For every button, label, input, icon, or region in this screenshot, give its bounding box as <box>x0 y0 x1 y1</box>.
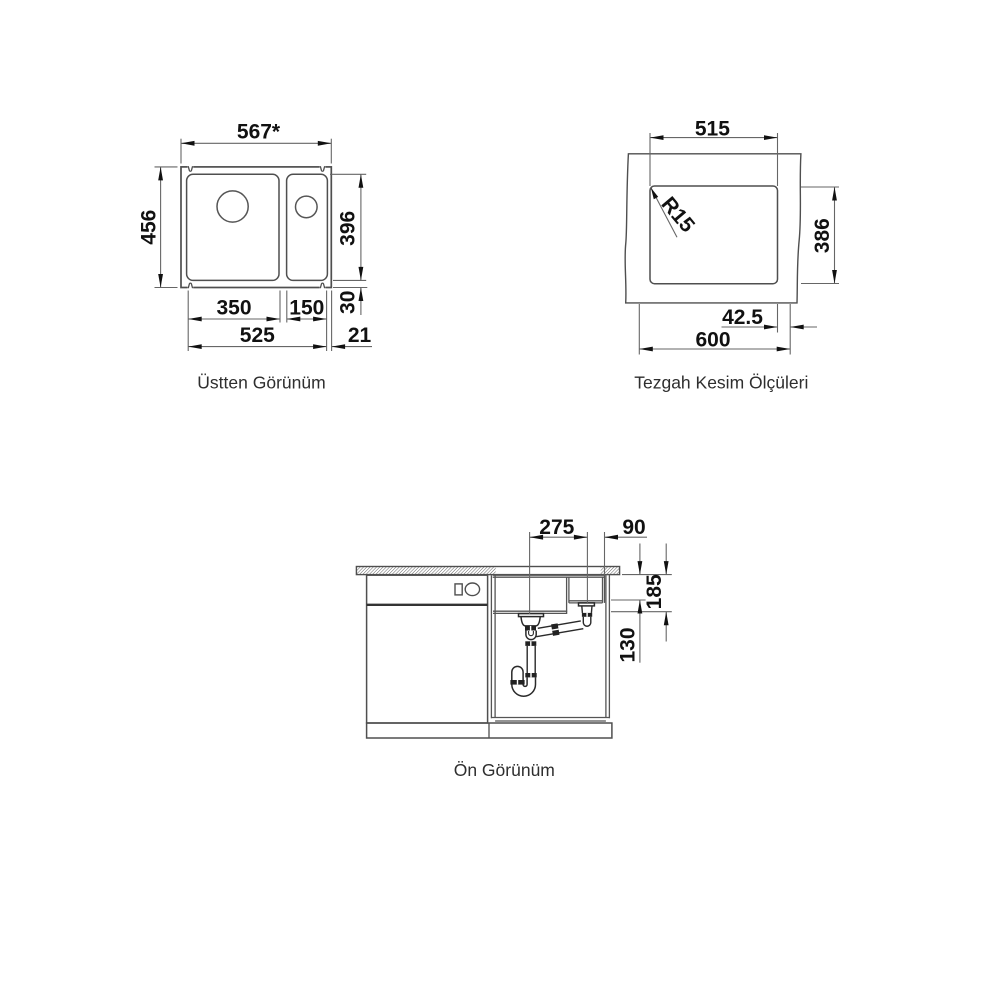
svg-text:90: 90 <box>622 516 645 539</box>
svg-text:567*: 567* <box>237 121 281 144</box>
svg-text:Ön Görünüm: Ön Görünüm <box>454 760 555 780</box>
svg-text:21: 21 <box>348 324 372 347</box>
svg-text:150: 150 <box>289 296 324 319</box>
svg-text:456: 456 <box>137 210 160 245</box>
svg-text:42.5: 42.5 <box>722 306 763 329</box>
svg-text:350: 350 <box>216 296 251 319</box>
svg-text:600: 600 <box>695 328 730 351</box>
svg-text:Tezgah Kesim Ölçüleri: Tezgah Kesim Ölçüleri <box>634 372 808 392</box>
svg-text:396: 396 <box>337 211 360 246</box>
svg-text:Üstten Görünüm: Üstten Görünüm <box>197 372 325 392</box>
svg-text:515: 515 <box>695 117 730 140</box>
svg-text:30: 30 <box>337 291 360 314</box>
svg-text:386: 386 <box>811 218 834 253</box>
svg-text:525: 525 <box>240 324 275 347</box>
svg-text:275: 275 <box>539 516 574 539</box>
svg-text:185: 185 <box>643 574 666 609</box>
svg-text:130: 130 <box>617 627 640 662</box>
